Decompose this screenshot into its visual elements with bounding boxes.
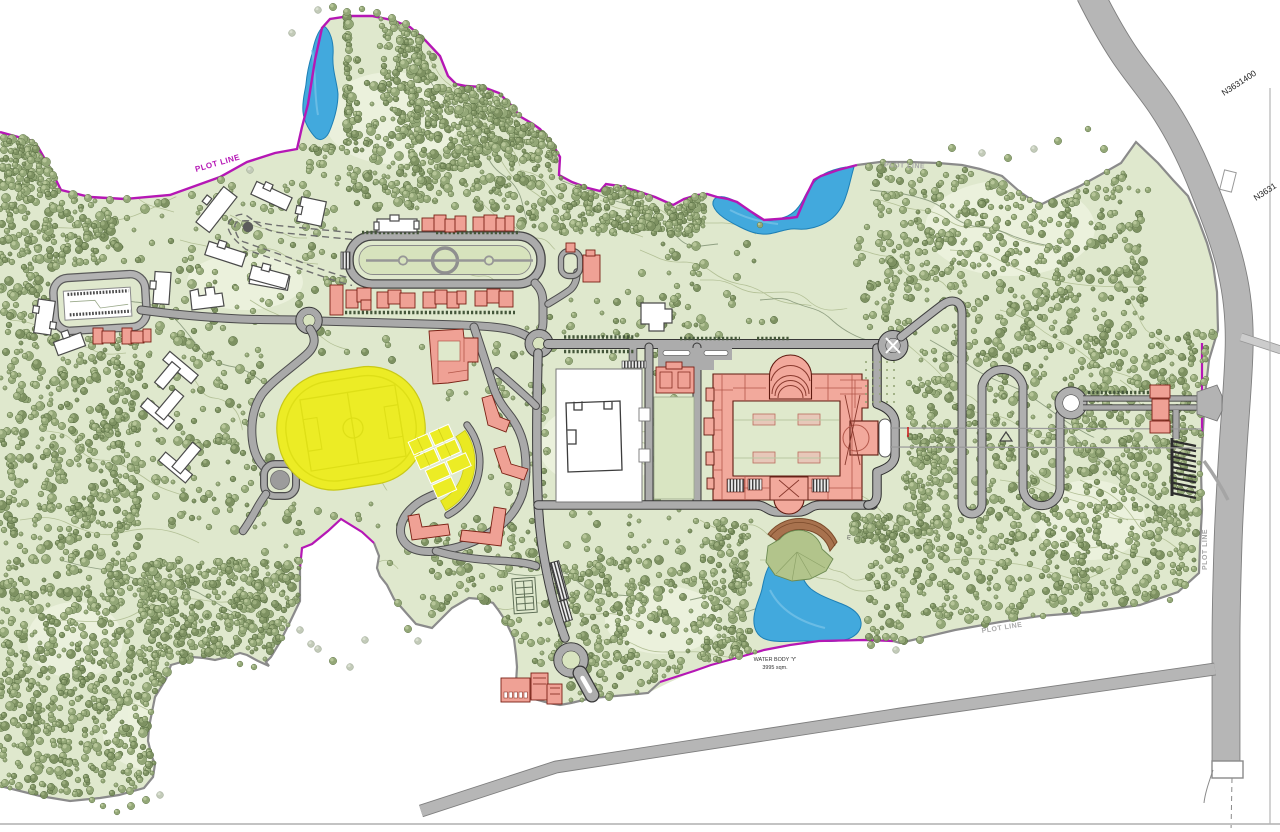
svg-text:3995 sqm.: 3995 sqm. [762,665,787,671]
svg-text:PLOT LINE: PLOT LINE [884,162,925,170]
svg-text:PLOT LINE: PLOT LINE [1202,529,1209,570]
svg-text:WATER BODY 'Y': WATER BODY 'Y' [754,657,797,663]
svg-text:m: m [846,534,853,540]
